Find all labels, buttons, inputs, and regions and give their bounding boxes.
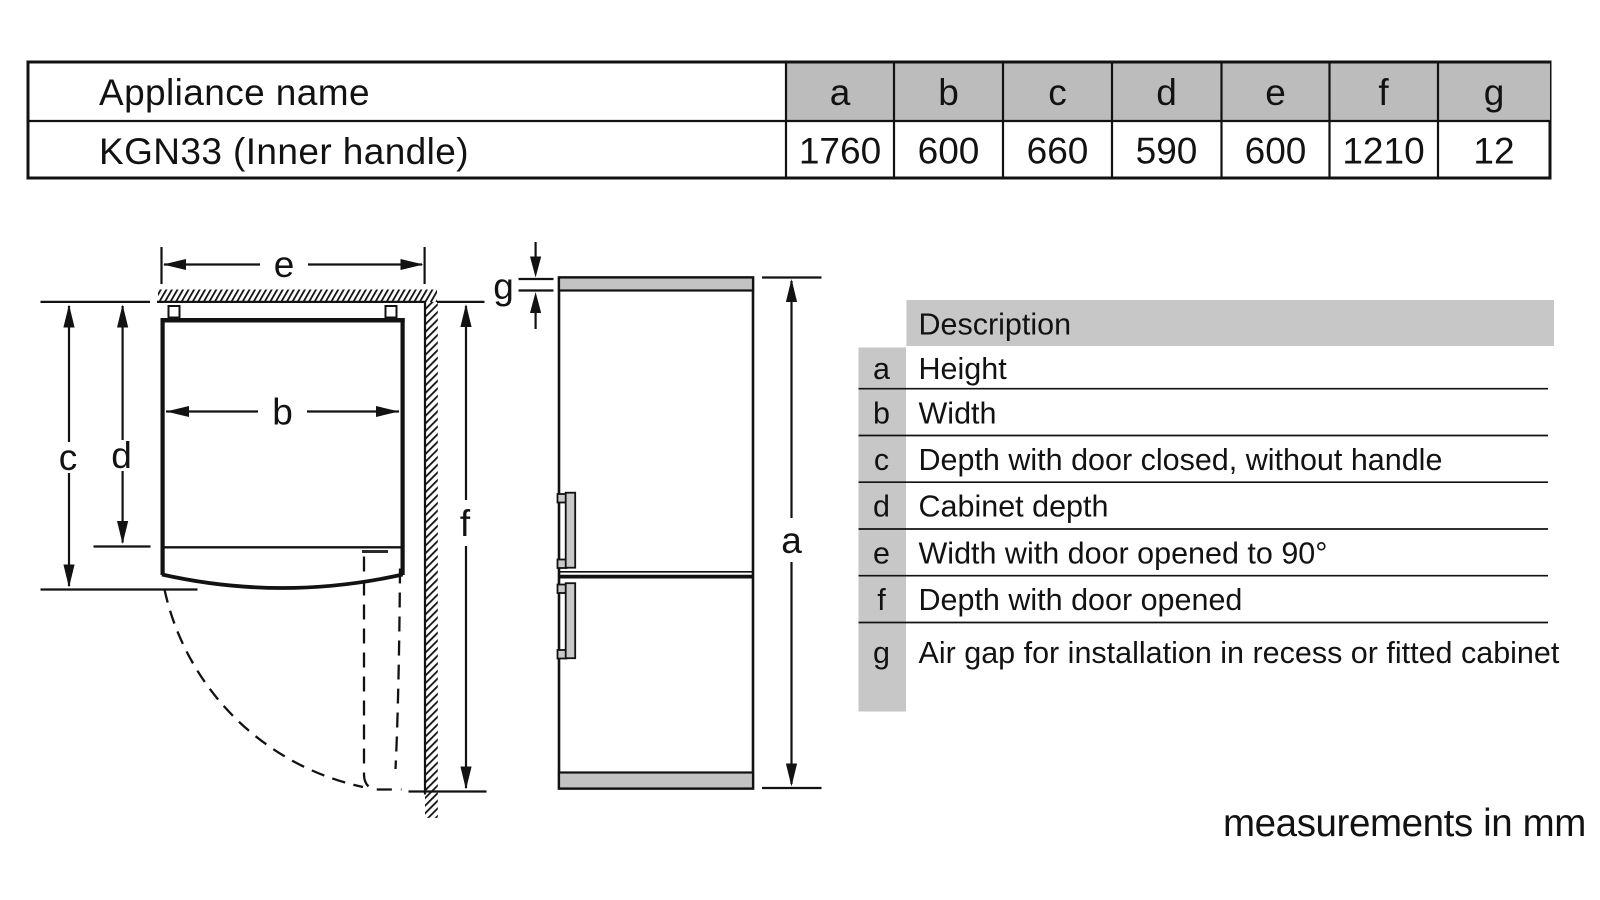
svg-text:d: d — [1156, 72, 1177, 113]
svg-text:Air gap for installation in re: Air gap for installation in recess or fi… — [919, 636, 1560, 670]
svg-text:e: e — [274, 244, 295, 285]
svg-text:Description: Description — [919, 308, 1072, 342]
svg-text:600: 600 — [1245, 131, 1307, 172]
svg-text:590: 590 — [1136, 131, 1198, 172]
svg-text:g: g — [873, 636, 890, 670]
svg-text:Appliance name: Appliance name — [99, 72, 370, 113]
svg-text:Height: Height — [919, 352, 1008, 386]
svg-text:f: f — [877, 583, 886, 617]
svg-text:measurements in mm: measurements in mm — [1223, 802, 1586, 845]
svg-text:Width: Width — [919, 397, 997, 431]
svg-text:f: f — [460, 503, 471, 544]
svg-text:c: c — [59, 437, 78, 478]
svg-text:g: g — [493, 266, 514, 307]
svg-text:a: a — [873, 352, 890, 386]
svg-text:a: a — [781, 520, 802, 561]
svg-text:g: g — [1484, 72, 1505, 113]
svg-text:c: c — [1048, 72, 1067, 113]
svg-text:12: 12 — [1473, 131, 1514, 172]
svg-text:b: b — [272, 392, 293, 433]
svg-text:d: d — [111, 435, 132, 476]
svg-text:Depth with door closed, withou: Depth with door closed, without handle — [919, 443, 1443, 477]
svg-text:Cabinet depth: Cabinet depth — [919, 490, 1109, 524]
svg-text:b: b — [938, 72, 959, 113]
svg-text:b: b — [873, 397, 890, 431]
svg-text:KGN33 (Inner handle): KGN33 (Inner handle) — [99, 131, 469, 172]
svg-text:c: c — [874, 443, 889, 477]
svg-text:d: d — [873, 490, 890, 524]
svg-text:660: 660 — [1027, 131, 1089, 172]
svg-text:e: e — [873, 537, 890, 571]
svg-text:a: a — [830, 72, 851, 113]
svg-text:1210: 1210 — [1342, 131, 1424, 172]
svg-text:1760: 1760 — [799, 131, 881, 172]
svg-text:f: f — [1378, 72, 1389, 113]
svg-text:Width with door opened to 90°: Width with door opened to 90° — [919, 537, 1328, 571]
svg-text:Depth with door opened: Depth with door opened — [919, 583, 1243, 617]
svg-text:600: 600 — [918, 131, 980, 172]
svg-text:e: e — [1265, 72, 1286, 113]
